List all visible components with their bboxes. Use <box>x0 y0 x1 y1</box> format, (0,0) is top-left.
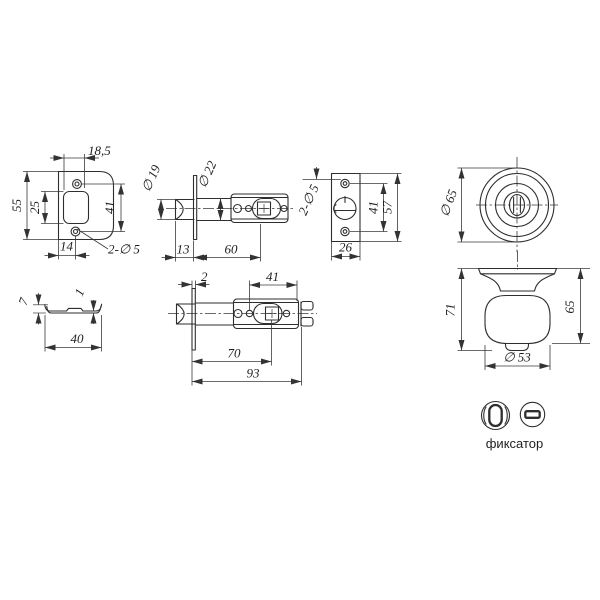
emergency-slot-icon <box>520 402 544 426</box>
dim-knob-diameter: ∅ 53 <box>503 350 531 365</box>
knob-neck <box>481 274 501 291</box>
dim-backset: 60 <box>225 242 239 257</box>
dim-height: 55 <box>9 199 24 213</box>
dim-hole-span: 41 <box>102 201 117 214</box>
fixator-icons: фиксатор <box>482 402 545 452</box>
faceplate-front-view: 18,5 55 25 41 14 2-∅ 5 <box>9 143 140 260</box>
dim-height: 57 <box>380 201 395 215</box>
latch-backset60-view: ∅ 19 ∅ 22 13 60 <box>138 158 293 261</box>
screw-hole <box>341 179 349 187</box>
screw-hole <box>73 180 82 189</box>
dim-tail-length: 41 <box>266 269 279 284</box>
dim-total-height: 71 <box>443 304 458 317</box>
knob-front-view: ∅ 65 <box>437 157 558 252</box>
dim-holes: 2-∅ 5 <box>108 242 140 257</box>
dim-flange-height: 7 <box>15 295 31 307</box>
dim-diameter: ∅ 65 <box>437 187 461 219</box>
dim-cutout-height: 25 <box>27 201 42 215</box>
dim-backset: 70 <box>228 346 242 361</box>
faceplate-profile-view: 7 1 40 <box>15 286 101 351</box>
tail-prong <box>301 302 313 311</box>
dim-head-length: 13 <box>177 242 191 257</box>
deadlatch-plunger <box>334 205 336 213</box>
latch-cutout <box>64 192 89 224</box>
dim-width: 26 <box>339 240 353 255</box>
dim-knob-height: 65 <box>562 300 577 314</box>
technical-drawing: 18,5 55 25 41 14 2-∅ 5 <box>0 0 600 600</box>
dim-bottom-offset: 14 <box>60 239 74 254</box>
fixator-caption: фиксатор <box>486 436 544 451</box>
tail-prong <box>301 318 313 327</box>
screw-hole <box>71 227 80 236</box>
knob-rose <box>479 269 557 274</box>
latch-backset70-view: 2 41 70 93 <box>168 269 317 386</box>
dim-hole-span: 41 <box>366 201 381 214</box>
dim-top-width: 18,5 <box>88 143 111 158</box>
dim-plate-thickness: 2 <box>201 269 208 284</box>
dim-total-length: 93 <box>247 366 261 381</box>
knob-ball <box>485 296 550 344</box>
dim-body-diameter: ∅ 22 <box>194 158 219 190</box>
face-plate <box>192 289 195 351</box>
screw-hole <box>341 227 349 235</box>
knob-side-view: 71 65 ∅ 53 <box>443 251 591 370</box>
dim-holes: 2-∅ 5 <box>295 182 322 218</box>
dim-thickness: 1 <box>71 286 87 298</box>
profile-outline <box>45 304 102 311</box>
edge-plate-view: 2-∅ 5 41 57 26 <box>295 167 401 261</box>
dim-head-diameter: ∅ 19 <box>138 162 163 194</box>
dim-length: 40 <box>71 331 85 346</box>
latch-head <box>176 200 195 220</box>
